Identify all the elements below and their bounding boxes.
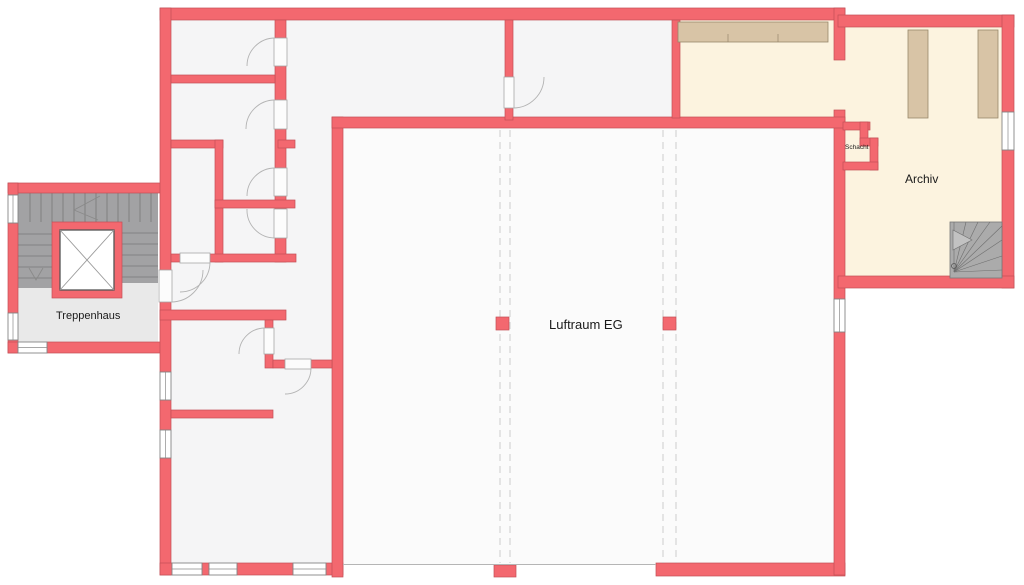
treppenhaus-label: Treppenhaus: [56, 310, 121, 322]
window: [160, 430, 171, 458]
luftraum-floor: [343, 128, 834, 565]
schacht-label: Schacht: [845, 144, 869, 151]
window: [834, 299, 845, 332]
window: [18, 342, 47, 353]
west-wall: [160, 8, 171, 270]
window: [8, 313, 18, 340]
shelf-vertical: [978, 30, 998, 118]
window: [172, 563, 202, 575]
window: [209, 563, 237, 575]
luftraum-west-wall: [332, 117, 343, 577]
window: [293, 563, 326, 575]
floor-plan-canvas: Treppenhaus: [0, 0, 1024, 585]
south-wall-west: [160, 563, 172, 575]
shelf-horizontal: [678, 22, 828, 42]
north-wall: [160, 8, 845, 20]
luftraum-north-wall: [332, 117, 845, 128]
edge-pier: [494, 565, 516, 577]
column: [496, 317, 509, 330]
south-wall-east: [656, 563, 845, 576]
window: [160, 372, 171, 400]
elevator-shaft: [52, 222, 122, 298]
floor-plan-page: Treppenhaus: [0, 0, 1024, 585]
window: [1002, 112, 1014, 150]
partition-top-band: [505, 20, 513, 77]
stair-flight-right: [122, 222, 158, 283]
window: [8, 195, 18, 223]
luftraum-label: Luftraum EG: [549, 317, 623, 332]
shelf-vertical: [908, 30, 928, 118]
column: [663, 317, 676, 330]
archiv-opening-floor: [834, 60, 845, 110]
archiv-label: Archiv: [905, 172, 938, 186]
stair-flight-top: [18, 193, 158, 222]
spiral-stair: [950, 222, 1002, 278]
